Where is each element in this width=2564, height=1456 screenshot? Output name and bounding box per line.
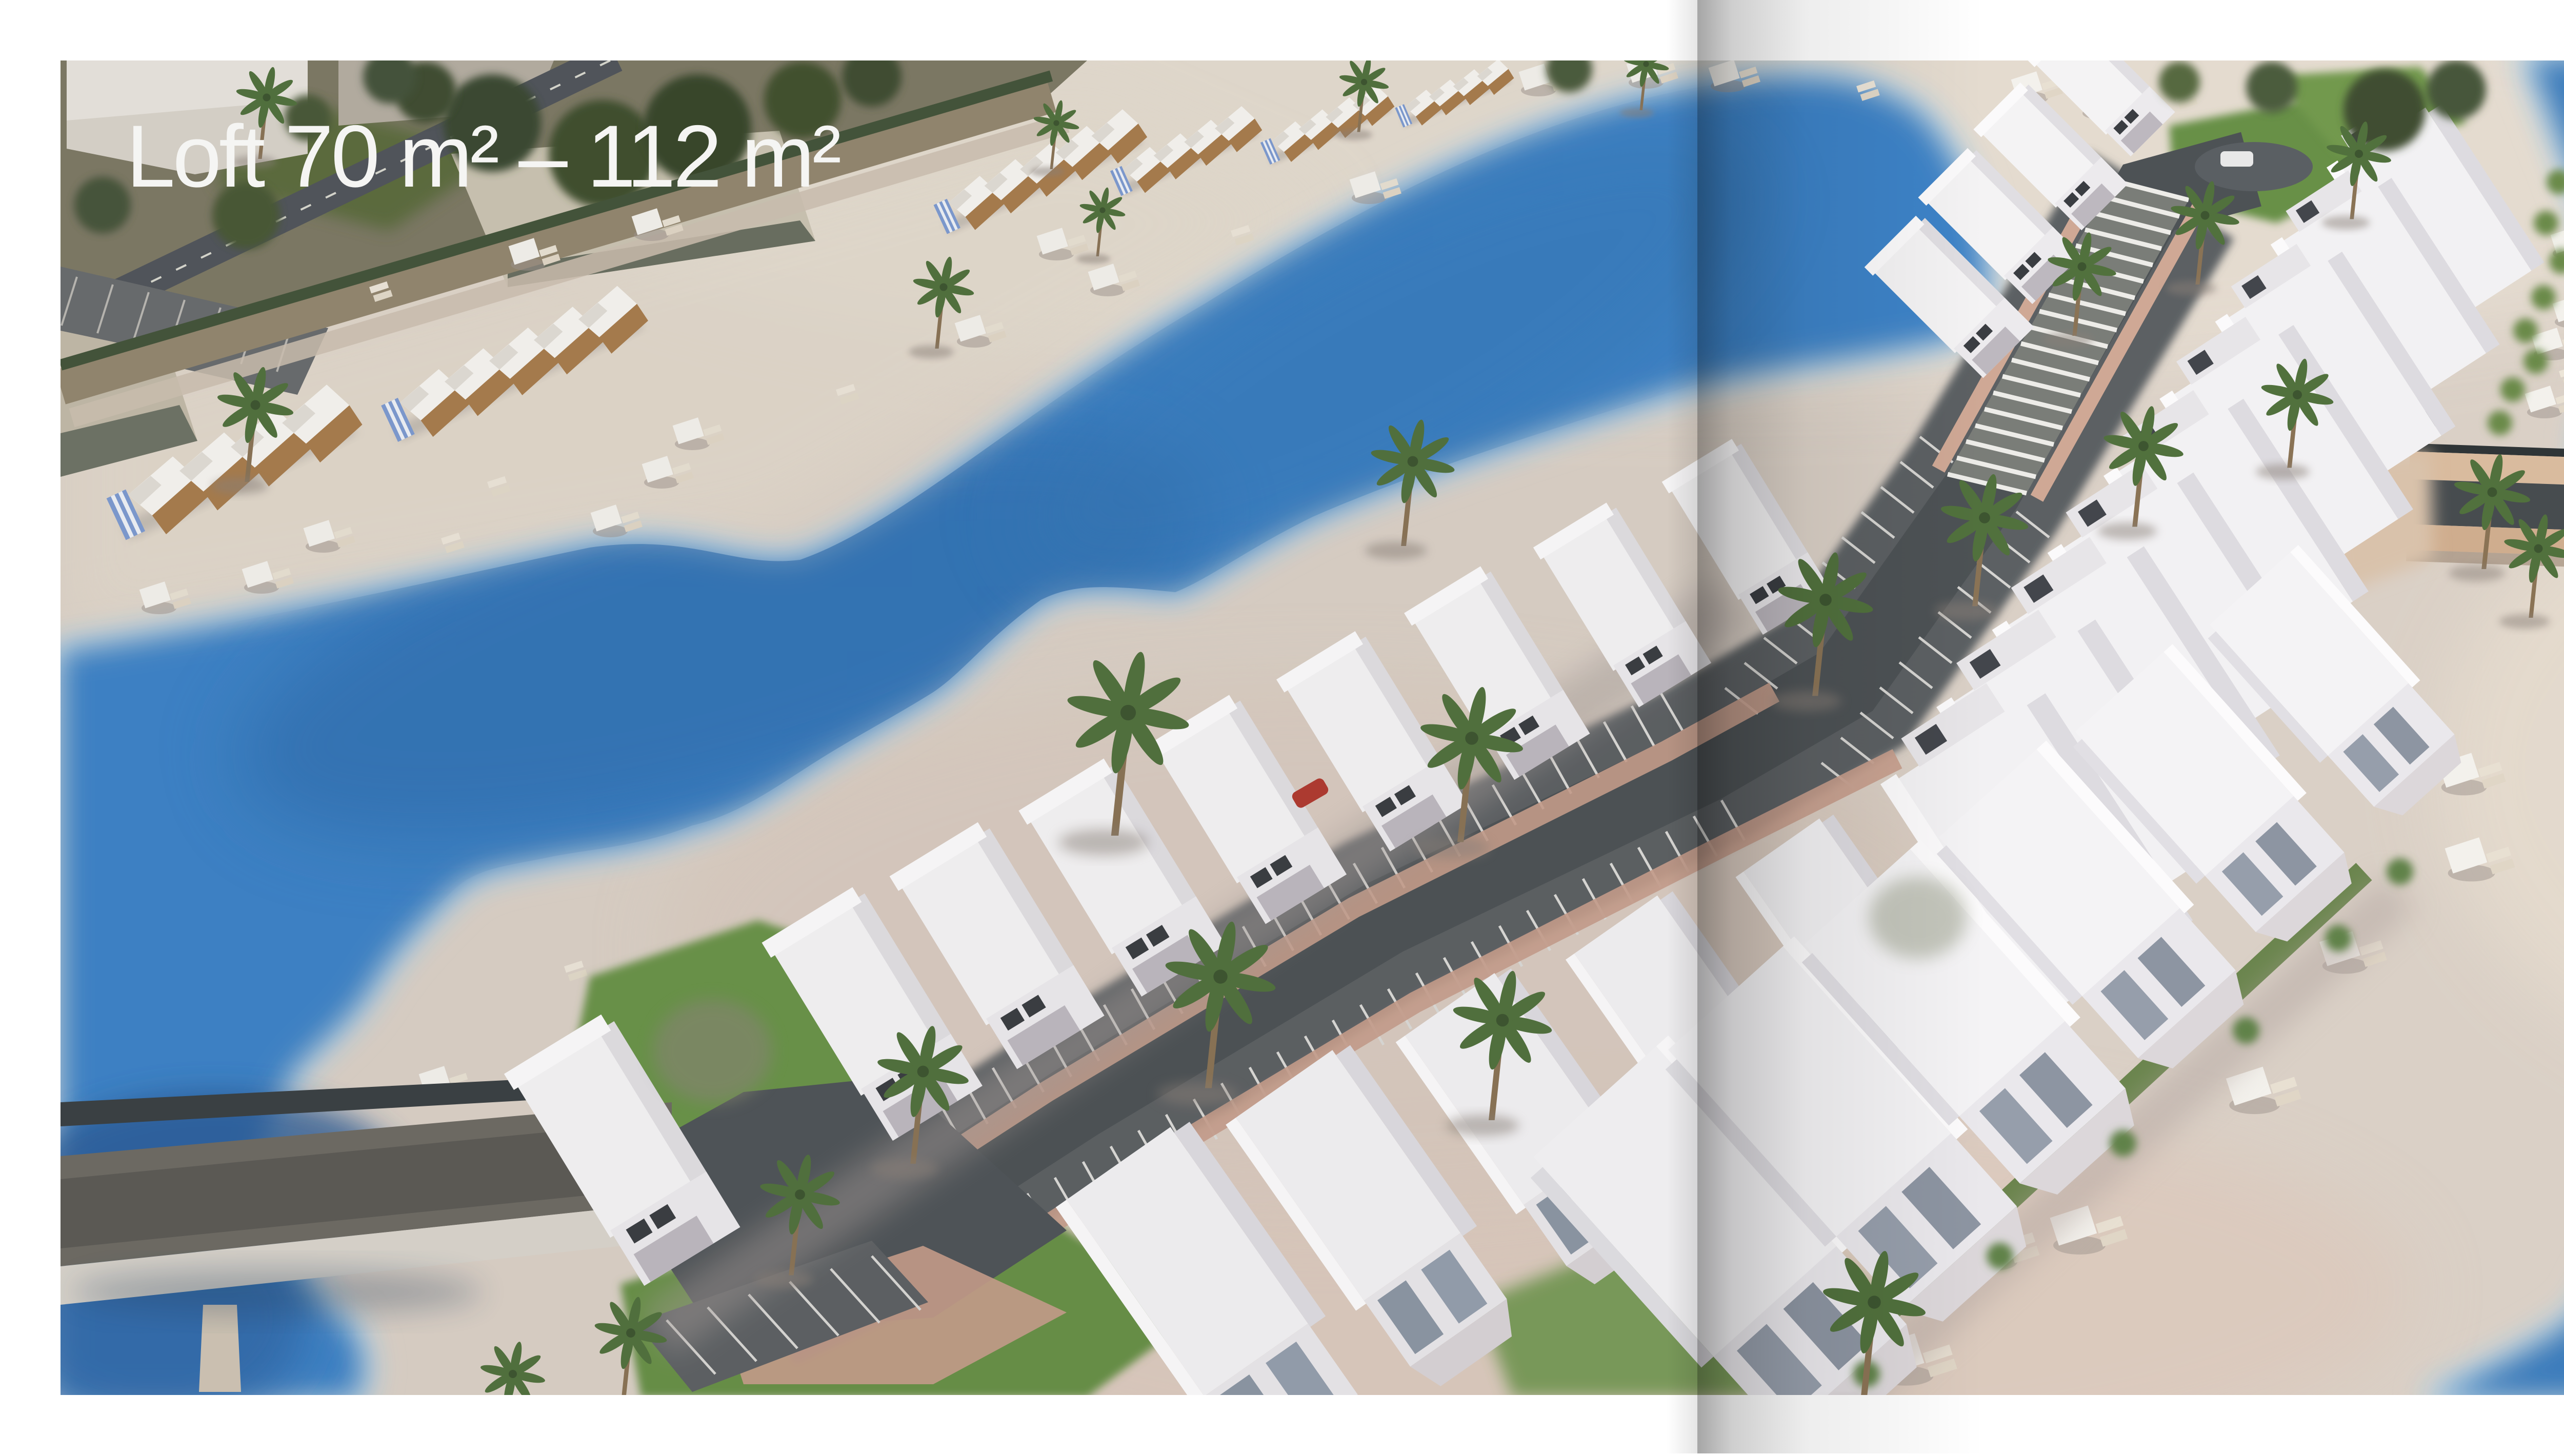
svg-text:Loft 70 m² – 112 m²: Loft 70 m² – 112 m² xyxy=(126,107,843,206)
